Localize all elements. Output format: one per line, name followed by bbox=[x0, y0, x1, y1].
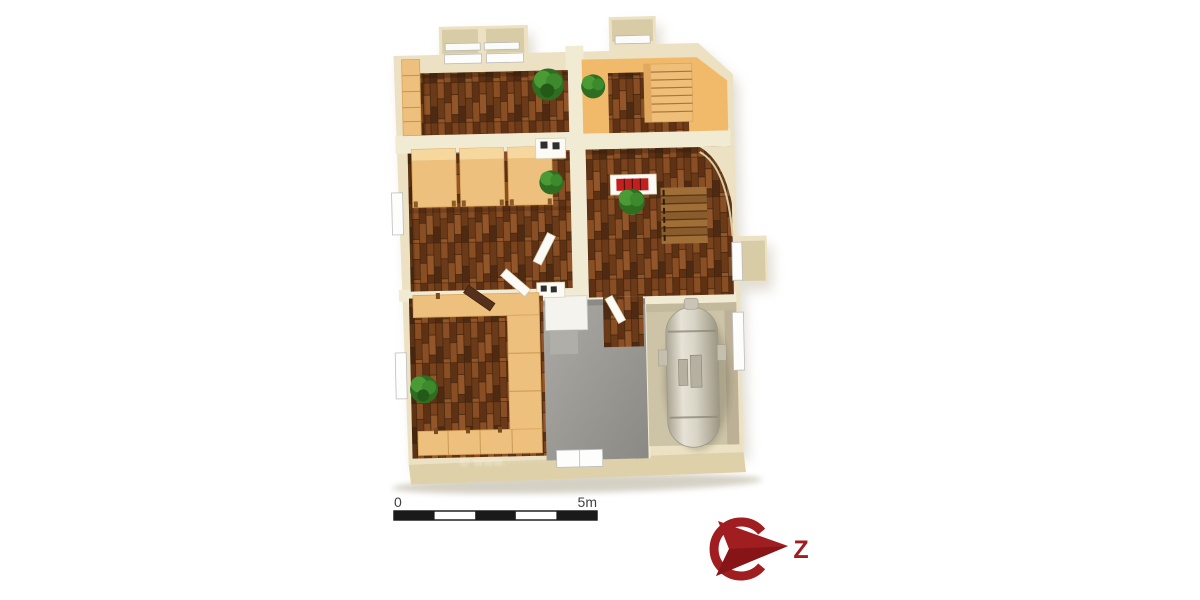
scale-label-end: 5m bbox=[578, 494, 597, 510]
window bbox=[395, 353, 407, 399]
stairs bbox=[661, 187, 708, 244]
dormer-top-left bbox=[442, 28, 525, 56]
chimney-flues bbox=[537, 282, 565, 298]
compass-icon: Z bbox=[714, 521, 809, 576]
slatted-bench bbox=[644, 63, 693, 122]
window-sill bbox=[615, 35, 650, 44]
floor-plan-render: © www.············ 0 5m Z bbox=[0, 0, 1200, 600]
floor-plan-canvas: © www.············ 0 5m Z bbox=[0, 0, 1200, 600]
scale-bar: 0 5m bbox=[394, 494, 597, 520]
scale-label-start: 0 bbox=[394, 494, 402, 510]
side-entry-bay bbox=[732, 241, 766, 282]
room-top-right bbox=[582, 56, 729, 133]
bed bbox=[460, 147, 505, 206]
bed bbox=[412, 149, 457, 208]
scale-segment bbox=[394, 511, 435, 520]
balcony-rail bbox=[484, 42, 519, 50]
window bbox=[486, 53, 523, 63]
chimney-flues bbox=[535, 138, 565, 159]
room-bottom-left bbox=[394, 291, 547, 459]
watermark-text: © www.············ bbox=[460, 453, 567, 469]
door bbox=[732, 242, 743, 280]
balcony-rail bbox=[445, 43, 480, 51]
window bbox=[444, 54, 481, 64]
dormer-top-right bbox=[612, 19, 654, 44]
compass-letter: Z bbox=[793, 536, 808, 564]
scale-segment bbox=[556, 511, 597, 520]
building: © www.············ bbox=[382, 13, 778, 497]
wood-floor bbox=[586, 146, 734, 297]
window bbox=[392, 193, 404, 235]
utility-tank-room bbox=[646, 297, 746, 452]
room-bedroom-middle-left bbox=[390, 138, 572, 292]
wall-shelf bbox=[402, 59, 422, 135]
scale-segment bbox=[475, 511, 516, 520]
window bbox=[732, 312, 744, 370]
